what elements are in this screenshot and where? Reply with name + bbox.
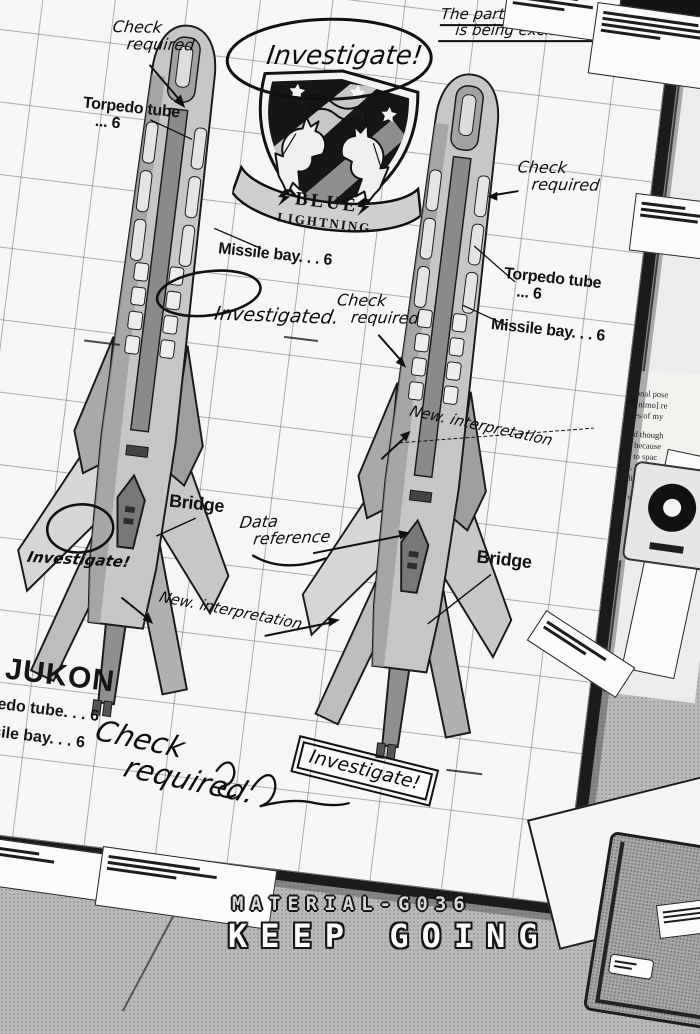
caption-keep-going: KEEP GOING bbox=[228, 917, 551, 955]
note-line: required bbox=[515, 176, 601, 194]
right-bulleted-card bbox=[629, 193, 700, 261]
note-check-required-topleft: Check required bbox=[110, 19, 198, 54]
note-investigated: Investigated. bbox=[213, 305, 341, 329]
scanned-material-page: { "caption": { "code": "MATERIAL-G036", … bbox=[0, 0, 700, 994]
pencil-line bbox=[122, 905, 180, 1012]
note-investigate-top: Investigate! bbox=[265, 43, 424, 70]
tiny-print-mark bbox=[284, 334, 324, 345]
blue-lightning-emblem: BLUE LIGHTNING bbox=[227, 50, 439, 262]
note-check-required-mid: Check required bbox=[334, 292, 422, 327]
spec-missile-bay: Missile bay. . . 6 bbox=[0, 720, 86, 752]
note-check-required-bottom: Check required. bbox=[81, 715, 270, 809]
note-data-reference: Data reference bbox=[236, 512, 334, 549]
note-line: required bbox=[110, 36, 196, 54]
tape-reel-object bbox=[621, 460, 700, 572]
reel-label bbox=[649, 542, 684, 554]
caption-material-code: MATERIAL-G036 bbox=[232, 893, 472, 915]
note-check-required-right: Check required bbox=[515, 159, 603, 194]
blueprint-sheet: BLUE LIGHTNING Torpedo tube ... 6 Missil… bbox=[0, 0, 675, 905]
note-line: required bbox=[334, 309, 420, 327]
